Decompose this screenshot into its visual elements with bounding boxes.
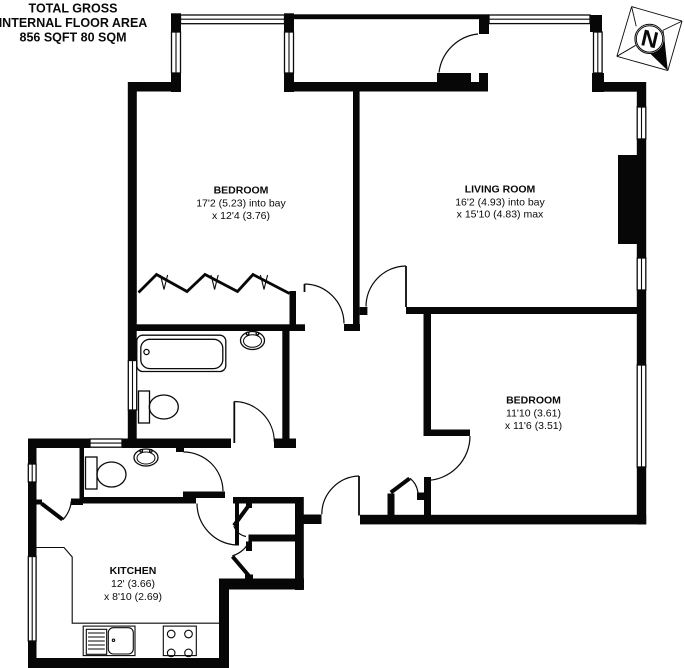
svg-text:x 11'6 (3.51): x 11'6 (3.51) — [505, 420, 562, 432]
svg-text:LIVING ROOM: LIVING ROOM — [465, 184, 536, 196]
svg-text:KITCHEN: KITCHEN — [110, 565, 157, 577]
svg-text:856 SQFT 80 SQM: 856 SQFT 80 SQM — [20, 31, 127, 45]
svg-text:16'2 (4.93) into bay: 16'2 (4.93) into bay — [455, 197, 545, 209]
svg-text:x 12'4 (3.76): x 12'4 (3.76) — [212, 210, 270, 222]
svg-text:x 8'10 (2.69): x 8'10 (2.69) — [104, 591, 162, 603]
svg-text:TOTAL GROSS: TOTAL GROSS — [29, 2, 118, 16]
svg-text:BEDROOM: BEDROOM — [214, 185, 269, 197]
svg-text:17'2 (5.23) into bay: 17'2 (5.23) into bay — [196, 198, 286, 210]
svg-text:INTERNAL FLOOR AREA: INTERNAL FLOOR AREA — [0, 16, 147, 30]
svg-text:BEDROOM: BEDROOM — [506, 395, 561, 407]
svg-text:11'10 (3.61): 11'10 (3.61) — [506, 408, 561, 420]
svg-text:x 15'10 (4.83) max: x 15'10 (4.83) max — [457, 209, 544, 221]
svg-text:12' (3.66): 12' (3.66) — [111, 578, 155, 590]
